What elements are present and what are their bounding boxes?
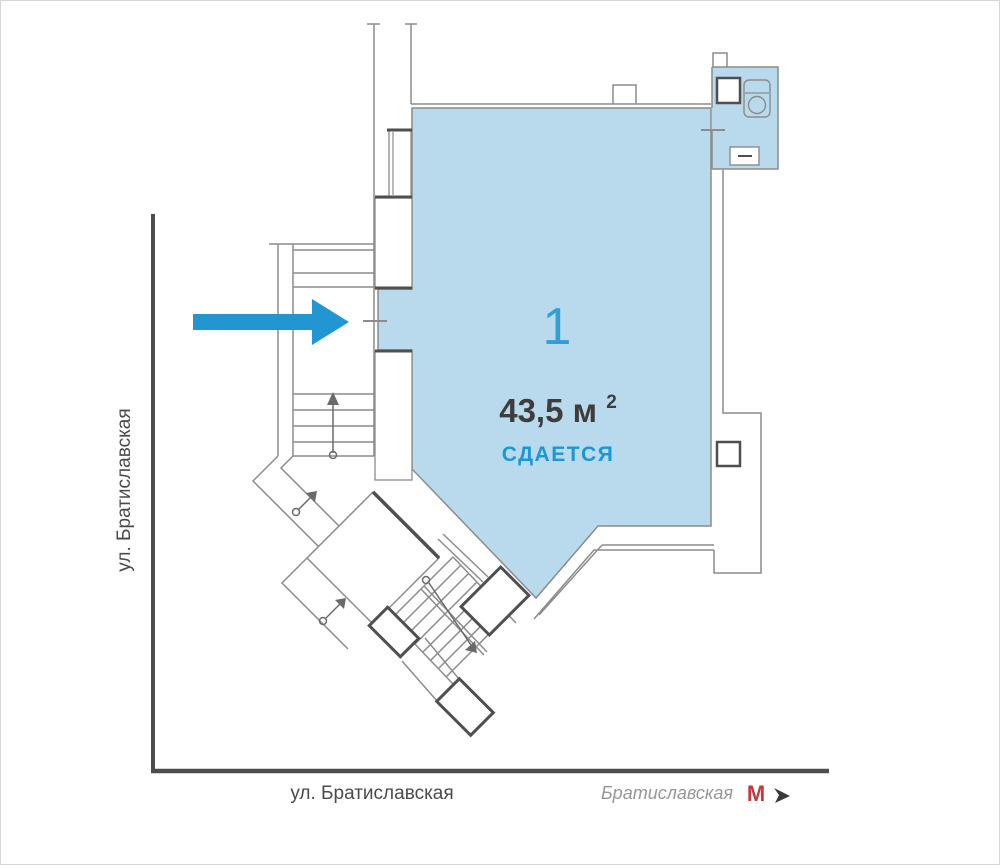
corridor-arrow-origin: [293, 509, 300, 516]
stair-pillar-2: [437, 679, 494, 736]
street-label-left: ул. Братиславская: [114, 408, 135, 571]
window-block: [389, 130, 411, 197]
wall-pier-upper: [375, 198, 412, 289]
down-stair-arrow-head: [465, 641, 477, 653]
vestibule-walls: [253, 244, 374, 547]
floor-plan-canvas: 1 43,5 м 2 СДАЕТСЯ ул. Братиславская ул.…: [0, 0, 1000, 865]
leased-area: [378, 67, 778, 598]
metro-station-label: Братиславская: [601, 783, 733, 803]
metro-direction-arrow-icon: [774, 788, 790, 803]
shaft-box: [717, 78, 740, 103]
area-value: 43,5 м: [499, 392, 597, 429]
unit-number-label: 1: [543, 298, 572, 356]
metro-logo-icon: М: [747, 781, 765, 806]
street-label-bottom: ул. Братиславская: [290, 783, 453, 804]
floor-plan-svg: 1 43,5 м 2 СДАЕТСЯ ул. Братиславская ул.…: [1, 1, 1000, 865]
down-stair-arrow-origin: [423, 577, 430, 584]
status-label: СДАЕТСЯ: [502, 443, 615, 466]
entrance-arrow: [193, 299, 349, 345]
right-wall-window: [717, 442, 740, 466]
landing-thick-edge: [373, 492, 439, 558]
area-superscript: 2: [606, 392, 617, 413]
area-label: 43,5 м 2: [499, 392, 617, 429]
wall-pier-lower: [375, 351, 412, 480]
metro-station-group: Братиславская М: [601, 781, 790, 806]
